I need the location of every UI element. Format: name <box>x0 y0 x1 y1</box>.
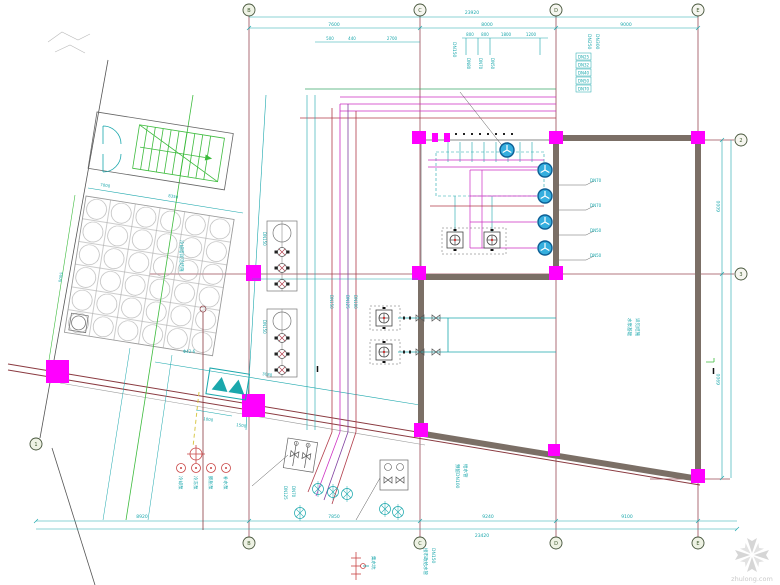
grid-bubble: B <box>243 537 255 549</box>
supply-note: 接市政给水管 <box>422 548 429 575</box>
pipe-tag-tower: DN300 <box>594 34 600 50</box>
grid-bubble-label: 3 <box>739 272 742 278</box>
dim-top-3: 9000 <box>620 22 632 28</box>
pipe-tag-supply: DN150 <box>451 42 457 58</box>
mid-pump-pair <box>370 306 556 364</box>
stair-flight <box>133 125 225 182</box>
dim-right-2: 6900 <box>716 373 722 385</box>
stack-tag: DN70 <box>578 87 590 92</box>
room-leaders: DN70 DN70 DN50 DN50 水泵基础 详见结施 <box>558 178 641 336</box>
thin-room-lines <box>420 140 553 277</box>
dim-sub: 1800 <box>501 32 512 37</box>
leader-lines-bottom <box>252 455 380 520</box>
valve <box>275 350 290 359</box>
grid-bubble-label: B <box>247 8 251 14</box>
dim-sub: 500 <box>326 36 334 41</box>
pump-base-note: 详见结施 <box>634 318 641 336</box>
grid-bubble-label: C <box>418 541 422 547</box>
pump-circle <box>538 163 552 177</box>
grid-bubble: 2 <box>735 134 747 146</box>
dim-sub: 800 <box>481 32 489 37</box>
pump-circle <box>500 143 514 157</box>
dim-right-1: 6000 <box>716 200 722 212</box>
equipment-bank-2: DN150 <box>262 309 297 377</box>
bank-tag: DN150 <box>262 232 267 246</box>
sump-note: 集水坑 <box>370 556 377 570</box>
grid-bubble: D <box>550 4 562 16</box>
dim-sub: 1200 <box>526 32 537 37</box>
contour-lines <box>48 32 90 53</box>
legend-label: 冷却泵 <box>177 476 184 490</box>
section-bracket <box>706 358 714 362</box>
pump-unit <box>376 307 392 329</box>
upper-plant-room <box>428 133 552 255</box>
stack-tag: DN50 <box>578 79 590 84</box>
valve <box>275 334 290 343</box>
reserve-note: 给水管 <box>462 464 469 478</box>
grid-bubble-label: E <box>696 8 699 14</box>
pump-circle <box>538 189 552 203</box>
grid-bubble-label: D <box>554 8 558 14</box>
grid-bubble-label: C <box>418 8 422 14</box>
site-sub-dims: 3080 1000 1500 <box>103 348 420 520</box>
grid-bubble: B <box>243 4 255 16</box>
dim-bottom-2: 7850 <box>328 514 340 520</box>
pipe-tag: DN100 <box>353 295 358 309</box>
dim-bottom-3: 9240 <box>482 514 494 520</box>
wall-dots <box>455 133 513 135</box>
grid-bubble: E <box>692 4 704 16</box>
leader-tag: DN70 <box>590 203 602 208</box>
dim-tank-height: 5000 <box>57 272 64 283</box>
site-boundary-lines <box>8 364 700 485</box>
valve-note: DN70 <box>291 486 296 498</box>
grid-bubble: 3 <box>735 268 747 280</box>
valve-bowtie <box>384 477 392 483</box>
bottom-left-line <box>52 448 95 585</box>
pump-unit <box>447 229 463 251</box>
dim-tank-left: 7000 <box>100 182 111 189</box>
legend-label: 补水泵 <box>222 476 229 490</box>
valve <box>275 366 290 375</box>
pump-circle <box>538 215 552 229</box>
grid-bubble-label: D <box>554 541 558 547</box>
dim-top-2: 8000 <box>481 22 493 28</box>
cad-plan-screenshot: B C D E B C D E 2 3 1 23920 7600 8000 90… <box>0 0 780 585</box>
stack-tag: DN25 <box>578 55 590 60</box>
bank-tag: DN150 <box>262 320 267 334</box>
double-door <box>103 126 121 172</box>
pump-base-note: 水泵基础 <box>626 318 633 336</box>
equipment-bank-1: DN150 <box>262 221 297 291</box>
pump-unit <box>376 341 392 363</box>
top-dimensions: 23920 7600 8000 9000 500 440 2700 800 80… <box>247 10 700 70</box>
grid-bubble-label: B <box>247 541 251 547</box>
pipe-tag-stack: DN25 DN32 DN40 DN50 DN70 <box>576 53 591 92</box>
valve <box>275 264 290 273</box>
dim-top-1: 7600 <box>328 22 340 28</box>
watermark-logo <box>735 538 769 572</box>
pipe-tag: DN150 <box>329 295 334 309</box>
cooling-tower-grid: 冷却塔详见结施 7000 8350 5000 <box>49 182 243 360</box>
pipe-tag: DN50 <box>490 58 495 70</box>
pipe-tag: DN125 <box>345 295 350 309</box>
tank-area-label: 冷却塔详见结施 <box>178 240 185 272</box>
grid-bubble: C <box>414 4 426 16</box>
dim-site-2: 1000 <box>203 416 214 423</box>
section-mark: I <box>712 367 715 376</box>
building-walls <box>418 138 701 479</box>
pump-circle <box>538 241 552 255</box>
watermark-text: zhulong.com <box>731 575 773 583</box>
dim-site-3: 1500 <box>236 422 247 429</box>
dim-top-total: 23920 <box>465 10 479 16</box>
grid-bubble-label: 1 <box>34 442 37 448</box>
grid-bubble: 1 <box>30 438 42 450</box>
supply-note: DN150 <box>430 548 436 564</box>
legend: 冷却泵 冷冻泵 膨胀泵 补水泵 <box>177 464 231 490</box>
leader-tag: DN50 <box>590 228 602 233</box>
bottom-dimensions: 8920 7850 9240 9100 23420 <box>34 514 739 539</box>
annotation-notes: DN125 DN70 预留DN100 给水管 接市政给水管 DN150 集水坑 <box>283 464 469 575</box>
sump-detail <box>351 552 369 580</box>
legend-label: 冷冻泵 <box>192 476 199 490</box>
leader-tag: DN50 <box>590 253 602 258</box>
valve-bowtie <box>396 477 404 483</box>
dim-bottom-1: 8920 <box>136 514 148 520</box>
strainer-symbols <box>295 481 404 521</box>
stair-room <box>88 112 233 190</box>
reserve-note: 预留DN100 <box>454 464 461 489</box>
grid-bubble: E <box>692 537 704 549</box>
grid-bubble-label: 2 <box>739 138 742 144</box>
valve-bowtie <box>302 453 311 460</box>
dim-sub: 800 <box>466 32 474 37</box>
pump-unit <box>484 229 500 251</box>
valve <box>275 280 290 289</box>
yellow-dashed-line <box>193 392 199 447</box>
dim-sub: 440 <box>348 36 356 41</box>
dim-bottom-total: 23420 <box>475 533 489 539</box>
tank-mark: Φ42-6 <box>183 349 196 354</box>
plan-drawing: B C D E B C D E 2 3 1 23920 7600 8000 90… <box>0 0 780 585</box>
dim-bottom-4: 9100 <box>621 514 633 520</box>
red-cross-symbol <box>187 445 205 463</box>
grid-bubble: D <box>550 537 562 549</box>
dim-sub: 2700 <box>387 36 398 41</box>
pipe-tag: DN80 <box>466 58 471 70</box>
riser-tags: DN150 DN125 DN100 <box>329 295 358 309</box>
valve <box>275 248 290 257</box>
stack-tag: DN32 <box>578 63 590 68</box>
section-mark: I <box>316 365 319 374</box>
pipe-tag: DN70 <box>478 58 483 70</box>
valve-bowtie <box>290 451 299 458</box>
valve-box-2 <box>380 460 408 490</box>
valve-note: DN125 <box>283 486 288 500</box>
grid-bubble-label: E <box>696 541 699 547</box>
right-dimensions: 6000 6900 <box>716 138 731 480</box>
valve-box-1 <box>283 438 317 472</box>
stack-tag: DN40 <box>578 71 590 76</box>
leader-tag: DN70 <box>590 178 602 183</box>
legend-label: 膨胀泵 <box>207 476 214 490</box>
pipe-tag-tower: DN250 <box>586 34 592 50</box>
